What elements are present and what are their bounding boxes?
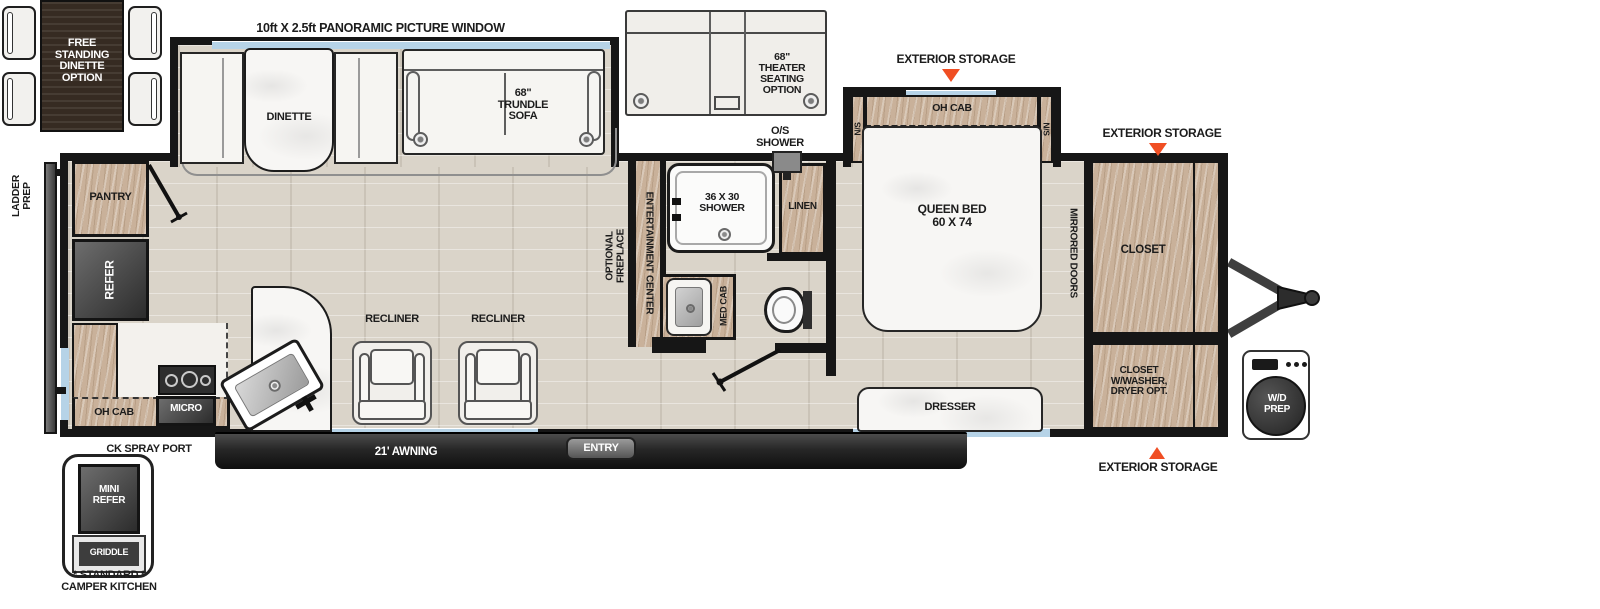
outside-shower-spout-icon xyxy=(783,173,791,180)
free-standing-dinette-chair xyxy=(128,72,162,126)
floor-plan: PANTRY REFER OH CAB MICRO DINETTE 68" T xyxy=(0,0,1600,609)
dresser-label: DRESSER xyxy=(887,402,1013,414)
panoramic-window-label: 10ft X 2.5ft PANORAMIC PICTURE WINDOW xyxy=(208,22,553,35)
shower-label: 36 X 30 SHOWER xyxy=(682,192,762,214)
sofa-armrest xyxy=(587,71,601,141)
cupholder-icon xyxy=(633,93,649,109)
sofa-armrest xyxy=(406,71,420,141)
entry-label: ENTRY xyxy=(568,443,634,455)
ladder-mount xyxy=(55,387,66,394)
os-shower-label: O/S SHOWER xyxy=(744,126,816,149)
burner-icon xyxy=(165,374,178,387)
cooktop xyxy=(158,365,216,395)
dinette-bench-left xyxy=(180,52,244,164)
griddle-table: GRIDDLE xyxy=(72,535,146,573)
sofa-back xyxy=(404,51,603,71)
pantry-door-swing-icon xyxy=(138,156,190,226)
optional-fireplace-label: OPTIONAL FIREPLACE xyxy=(606,229,627,283)
awning-label: 21' AWNING xyxy=(321,446,491,458)
linen-label: LINEN xyxy=(779,202,826,213)
free-standing-dinette-chair xyxy=(2,72,36,126)
mirrored-doors-label: MIRRORED DOORS xyxy=(1067,208,1078,298)
exterior-storage-bottom-label: EXTERIOR STORAGE xyxy=(1078,461,1238,474)
queen-bed-label: QUEEN BED 60 X 74 xyxy=(887,203,1017,228)
recliner-left-label: RECLINER xyxy=(347,314,437,326)
rear-wall-window-glass xyxy=(60,348,69,420)
console-cupholder xyxy=(714,96,740,110)
vanity-sink xyxy=(666,278,712,336)
washer-knob-icon xyxy=(1286,362,1291,367)
bench-seam xyxy=(358,58,360,158)
washer-display xyxy=(1252,359,1278,370)
micro-label: MICRO xyxy=(156,404,216,415)
med-cab-label: MED CAB xyxy=(719,286,728,326)
closet-label: CLOSET xyxy=(1091,244,1195,256)
closet-divider-wall xyxy=(1084,334,1220,343)
free-standing-dinette-chair xyxy=(128,6,162,60)
burner-icon xyxy=(200,375,211,386)
dinette-label: DINETTE xyxy=(246,112,332,124)
ladder-prep-label: LADDER PREP xyxy=(11,175,33,217)
outside-shower-fixture xyxy=(772,151,802,173)
toilet-tank xyxy=(803,291,812,329)
theater-back xyxy=(627,12,825,34)
toilet-bowl-ring xyxy=(772,296,796,324)
trundle-sofa-label: 68" TRUNDLE SOFA xyxy=(478,88,568,123)
free-standing-dinette-label: FREE STANDING DINETTE OPTION xyxy=(42,38,122,84)
pantry-label: PANTRY xyxy=(74,192,147,204)
exterior-storage-arrow-icon xyxy=(1149,447,1165,459)
refer-label: REFER xyxy=(104,260,117,299)
recliner-arm xyxy=(414,353,425,405)
bath-bedroom-wall xyxy=(826,161,836,376)
dinette-bench-right xyxy=(334,52,398,164)
entry-door-tag: ENTRY xyxy=(566,437,636,460)
burner-icon xyxy=(181,371,198,388)
bedroom-oh-cab-label: OH CAB xyxy=(895,103,1009,114)
exterior-storage-front-label: EXTERIOR STORAGE xyxy=(1082,127,1242,140)
recliner-arm xyxy=(465,353,476,405)
washer-knob-icon xyxy=(1302,362,1307,367)
bench-seam xyxy=(222,58,224,158)
washer-icon: W/D PREP xyxy=(1242,350,1310,440)
entertainment-wall-left xyxy=(628,161,636,347)
kitchen-oh-cab-label: OH CAB xyxy=(78,407,150,418)
exterior-storage-arrow-icon xyxy=(1149,143,1167,156)
recliner-right xyxy=(458,341,538,425)
linen-bottom-wall xyxy=(767,253,836,261)
theater-seating-option: 68" THEATER SEATING OPTION xyxy=(625,10,827,116)
exterior-storage-top-label: EXTERIOR STORAGE xyxy=(876,53,1036,66)
console-seam xyxy=(709,12,711,114)
chair-back xyxy=(7,78,13,120)
mini-refer-label: MINI REFER xyxy=(78,485,140,506)
cupholder-icon xyxy=(413,132,428,147)
bath-door-swing-icon xyxy=(698,342,786,392)
drain-icon xyxy=(718,228,731,241)
recliner-footrest xyxy=(358,400,426,420)
recliner-back xyxy=(476,349,520,385)
drain-icon xyxy=(686,304,695,313)
entertainment-center-label: ENTERTAINMENT CENTER xyxy=(643,192,654,315)
chair-back xyxy=(151,12,157,54)
chair-back xyxy=(151,78,157,120)
recliner-arm xyxy=(359,353,370,405)
recliner-back xyxy=(370,349,414,385)
queen-bed xyxy=(862,126,1042,332)
showerhead-icon xyxy=(672,198,681,205)
exterior-storage-arrow-icon xyxy=(942,69,960,82)
camper-kitchen-option: MINI REFER GRIDDLE xyxy=(62,454,154,578)
recliner-footrest xyxy=(464,400,532,420)
washer-knob-icon xyxy=(1294,362,1299,367)
dinette-table xyxy=(244,48,334,172)
closet-rear-divider-line xyxy=(1193,161,1195,429)
toilet xyxy=(764,287,806,333)
closet-washer-label: CLOSET W/WASHER, DRYER OPT. xyxy=(1086,366,1192,398)
recliner-left xyxy=(352,341,432,425)
recliner-right-label: RECLINER xyxy=(453,314,543,326)
camper-kitchen-caption: * STANDARD * CAMPER KITCHEN xyxy=(39,570,179,593)
recliner-arm xyxy=(520,353,531,405)
theater-seating-label: 68" THEATER SEATING OPTION xyxy=(739,52,825,96)
showerhead-icon xyxy=(672,214,681,221)
nightstand-right-label: N/S xyxy=(1042,122,1051,135)
ladder-mount xyxy=(55,169,66,176)
wd-prep-label: W/D PREP xyxy=(1246,394,1308,415)
griddle-label: GRIDDLE xyxy=(79,548,139,557)
hitch-icon xyxy=(1228,250,1322,346)
chair-back xyxy=(7,12,13,54)
free-standing-dinette-chair xyxy=(2,6,36,60)
cupholder-icon xyxy=(579,132,594,147)
